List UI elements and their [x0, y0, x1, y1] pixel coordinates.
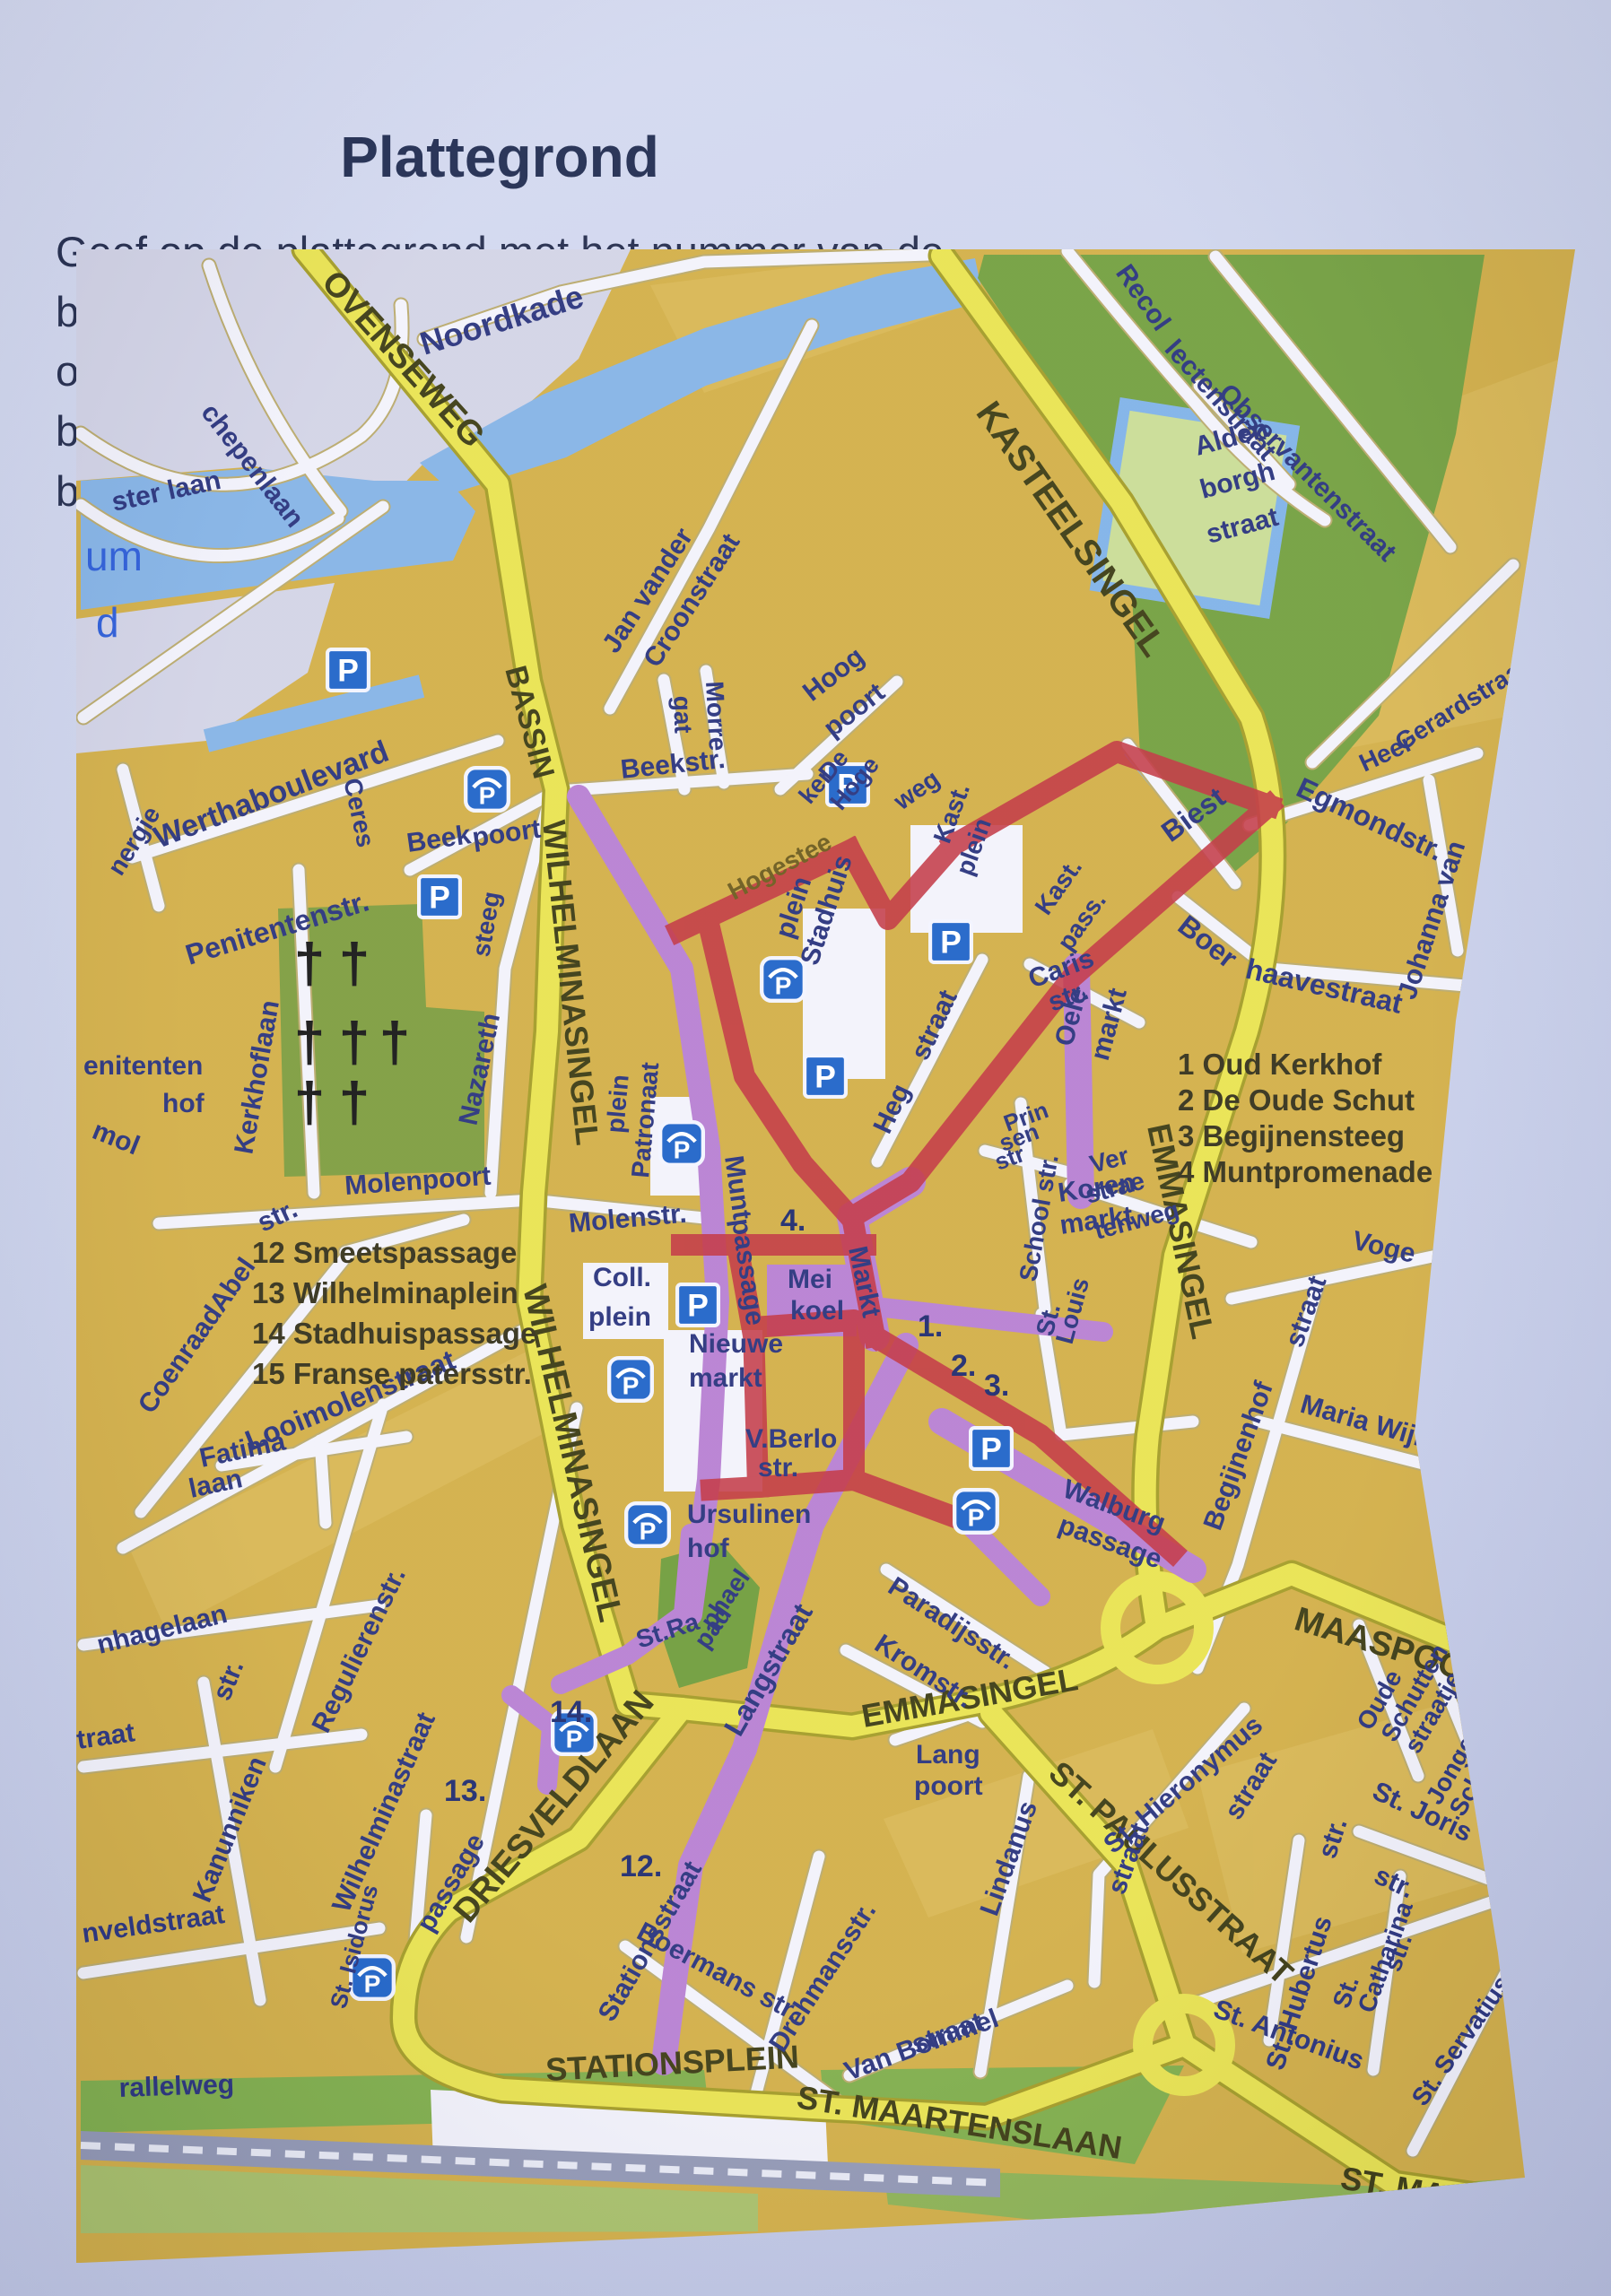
- street-label: poort: [914, 1771, 983, 1801]
- legend-entry: 14 Stadhuispassage: [252, 1317, 536, 1350]
- parking-garage-icon: [660, 1122, 703, 1165]
- street-label: markt: [689, 1363, 762, 1393]
- street-label: gat: [668, 695, 697, 734]
- route-number: 12.: [620, 1849, 662, 1883]
- street-label: Morre: [701, 681, 732, 752]
- cross-icon: †: [294, 1012, 325, 1074]
- route-number: 2.: [951, 1349, 976, 1383]
- street-label: koel: [790, 1296, 844, 1326]
- parking-garage-icon: [466, 768, 509, 811]
- parking-icon: [327, 649, 369, 691]
- parking-garage-icon: [762, 958, 805, 1001]
- street-label: Coll.: [593, 1263, 651, 1292]
- street-label: Lang: [916, 1740, 980, 1770]
- parking-garage-icon: [626, 1503, 669, 1546]
- route-number: 1.: [918, 1309, 943, 1344]
- parking-garage-icon: [609, 1358, 652, 1401]
- street-label: plein: [601, 1074, 634, 1135]
- page-title: Plattegrond: [56, 124, 944, 190]
- street-label: str.: [758, 1453, 798, 1483]
- route-number: 4.: [780, 1204, 805, 1238]
- street-label: rallelweg: [118, 2070, 234, 2103]
- cross-icon: †: [339, 1012, 370, 1074]
- parking-icon: [971, 1428, 1012, 1469]
- cross-icon: †: [339, 1072, 370, 1134]
- cross-icon: †: [379, 1012, 410, 1074]
- legend-entry: 3 Begijnensteeg: [1178, 1119, 1405, 1152]
- street-label: Mei: [788, 1265, 832, 1294]
- cross-icon: †: [294, 933, 325, 995]
- street-label: Nieuwe: [689, 1329, 783, 1359]
- route-number: 13.: [444, 1774, 486, 1808]
- parking-icon: [805, 1056, 846, 1097]
- worksheet-page: { "page": { "title": "Plattegrond", "ins…: [0, 0, 1611, 2296]
- parking-garage-icon: [954, 1490, 997, 1533]
- legend-entry: 13 Wilhelminaplein: [252, 1276, 518, 1309]
- legend-entry: 4 Muntpromenade: [1178, 1155, 1432, 1188]
- legend-entry: 2 De Oude Schut: [1178, 1083, 1415, 1117]
- legend-entry: 1 Oud Kerkhof: [1178, 1048, 1382, 1081]
- street-label: Ursulinen: [687, 1500, 811, 1529]
- legend-entry: 12 Smeetspassage: [252, 1236, 517, 1269]
- route-number: 3.: [984, 1369, 1009, 1403]
- street-label: um: [85, 533, 143, 579]
- street-label: d: [96, 599, 119, 646]
- street-label: enitenten: [83, 1051, 203, 1081]
- parking-icon: [930, 921, 971, 962]
- city-map: P P: [76, 249, 1579, 2263]
- cross-icon: †: [294, 1072, 325, 1134]
- street-label: plein: [588, 1302, 651, 1332]
- street-label: hof: [687, 1534, 730, 1563]
- legend-entry: 15 Franse patersstr.: [252, 1357, 532, 1390]
- route-number: 14.: [550, 1695, 592, 1729]
- route-segment: [711, 1487, 758, 1490]
- street-label: V.Berlo: [745, 1424, 837, 1454]
- cross-icon: †: [339, 933, 370, 995]
- parking-icon: [419, 876, 460, 918]
- street-label: hof: [162, 1089, 205, 1118]
- parking-icon: [677, 1284, 718, 1326]
